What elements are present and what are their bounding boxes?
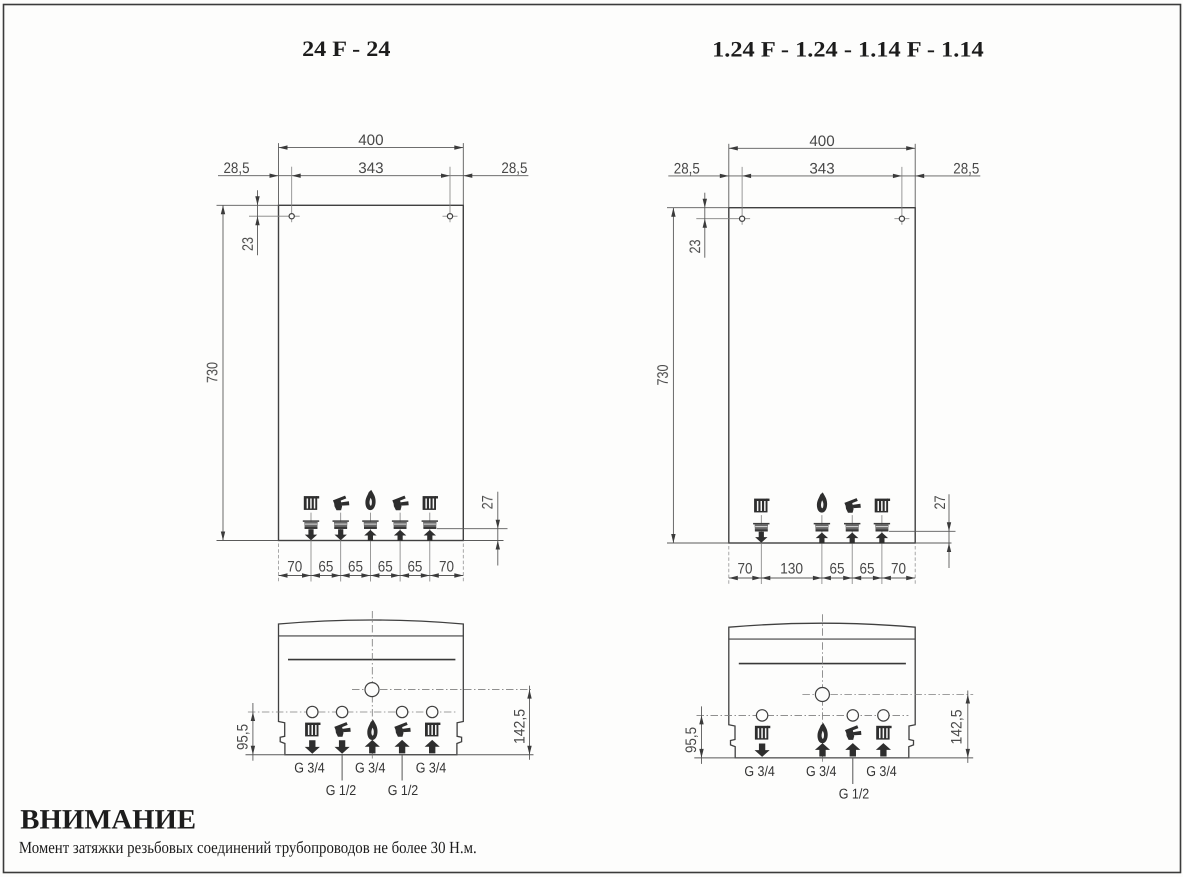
- svg-text:27: 27: [480, 495, 497, 509]
- svg-text:730: 730: [204, 362, 221, 383]
- svg-text:G 3/4: G 3/4: [416, 761, 447, 777]
- svg-text:65: 65: [318, 559, 333, 576]
- svg-text:24 F - 24: 24 F - 24: [302, 36, 390, 61]
- svg-text:28,5: 28,5: [674, 160, 700, 177]
- svg-text:28,5: 28,5: [953, 160, 979, 177]
- svg-text:23: 23: [240, 237, 257, 251]
- svg-text:70: 70: [738, 561, 753, 578]
- svg-text:G 1/2: G 1/2: [326, 783, 357, 799]
- svg-text:95,5: 95,5: [235, 724, 252, 750]
- svg-text:28,5: 28,5: [501, 160, 527, 177]
- svg-text:343: 343: [809, 160, 834, 177]
- svg-text:730: 730: [655, 365, 672, 386]
- svg-text:400: 400: [358, 132, 383, 149]
- svg-text:65: 65: [407, 559, 422, 576]
- svg-text:G 3/4: G 3/4: [355, 761, 386, 777]
- svg-text:70: 70: [439, 559, 454, 576]
- svg-text:65: 65: [860, 561, 875, 578]
- svg-text:1.24 F - 1.24 - 1.14 F - 1.14: 1.24 F - 1.24 - 1.14 F - 1.14: [712, 37, 984, 62]
- svg-text:95,5: 95,5: [683, 727, 700, 753]
- svg-text:ВНИМАНИЕ: ВНИМАНИЕ: [20, 805, 196, 836]
- svg-text:G 1/2: G 1/2: [839, 786, 870, 802]
- svg-text:28,5: 28,5: [224, 160, 250, 177]
- svg-text:65: 65: [830, 561, 845, 578]
- svg-text:G 3/4: G 3/4: [744, 764, 775, 780]
- svg-text:G 3/4: G 3/4: [806, 764, 837, 780]
- svg-text:343: 343: [358, 160, 383, 177]
- svg-text:142,5: 142,5: [512, 709, 529, 744]
- svg-text:70: 70: [891, 561, 906, 578]
- svg-text:G 3/4: G 3/4: [294, 761, 325, 777]
- svg-text:130: 130: [780, 561, 803, 578]
- svg-text:G 1/2: G 1/2: [388, 783, 419, 799]
- svg-text:27: 27: [932, 496, 949, 510]
- svg-text:400: 400: [809, 133, 834, 150]
- svg-text:70: 70: [287, 559, 302, 576]
- svg-text:23: 23: [687, 240, 704, 254]
- svg-text:142,5: 142,5: [949, 710, 966, 745]
- svg-text:65: 65: [378, 559, 393, 576]
- svg-text:65: 65: [348, 559, 363, 576]
- svg-text:G 3/4: G 3/4: [866, 764, 897, 780]
- svg-text:Момент затяжки резьбовых соеди: Момент затяжки резьбовых соединений труб…: [19, 838, 477, 857]
